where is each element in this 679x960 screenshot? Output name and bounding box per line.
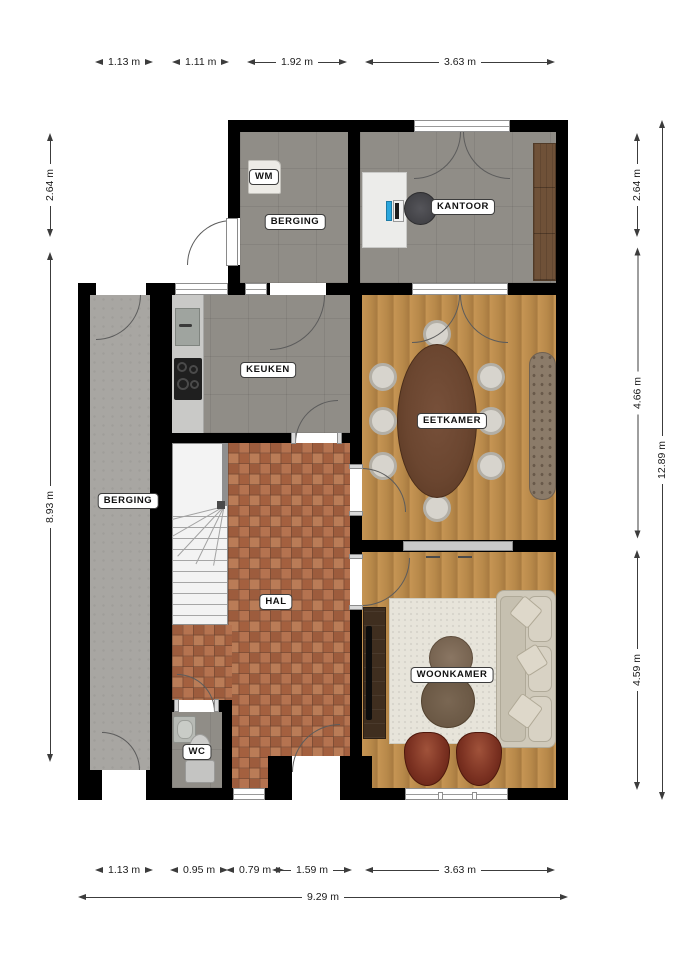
floor-plan: WM BERGING KANTOOR KEUKEN BERGING HAL EE…: [0, 0, 679, 960]
room-label-hal: HAL: [259, 594, 292, 610]
wc-sink-basin: [177, 720, 193, 739]
wall: [340, 756, 372, 800]
dimension-left-1: 2.64 m: [42, 133, 58, 237]
door-jamb: [349, 554, 363, 559]
monitor-screen: [395, 203, 399, 219]
dimension-bottom-5: 3.63 m: [365, 862, 555, 878]
door-opening-berging-garden: [102, 770, 146, 800]
wall: [268, 756, 292, 800]
door-opening-eetkamer-top: [412, 283, 508, 295]
dimension-bottom-total: 9.29 m: [78, 889, 568, 905]
porch: [292, 772, 340, 800]
kitchen-sink: [175, 308, 200, 346]
window-mullion: [438, 792, 443, 800]
burner: [189, 365, 198, 374]
dimension-top-3: 1.92 m: [247, 54, 347, 70]
stairs-stringer: [222, 444, 227, 506]
dimension-bottom-4: 1.59 m: [272, 862, 352, 878]
dimension-label: 12.89 m: [654, 436, 670, 484]
dimension-label: 1.13 m: [103, 54, 145, 70]
wall: [228, 120, 240, 295]
dining-chair: [477, 363, 505, 391]
floor-berging-top: [240, 132, 348, 283]
runner-rug: [529, 352, 556, 500]
room-label-berging-left: BERGING: [98, 493, 159, 509]
wall: [150, 283, 172, 770]
sliding-door-handle: [458, 556, 472, 558]
sliding-door-handle: [426, 556, 440, 558]
dimension-label: 0.95 m: [178, 862, 220, 878]
faucet: [179, 324, 192, 327]
dining-chair: [369, 363, 397, 391]
dimension-label: 1.59 m: [291, 862, 333, 878]
window-keuken: [245, 283, 267, 295]
dimension-right-2: 4.66 m: [630, 248, 646, 539]
room-label-berging-top: BERGING: [265, 214, 326, 230]
dimension-right-1: 2.64 m: [629, 133, 645, 237]
dimension-label: 2.64 m: [629, 164, 645, 206]
dimension-label: 3.63 m: [439, 54, 481, 70]
room-label-woonkamer: WOONKAMER: [411, 667, 494, 683]
wall: [78, 283, 90, 800]
staircase: [172, 443, 228, 625]
window-mullion: [472, 792, 477, 800]
door-opening-woonkamer-side: [350, 558, 362, 606]
laptop: [386, 201, 392, 221]
wall: [228, 120, 568, 132]
burner: [177, 362, 187, 372]
window-kantoor-top: [414, 120, 510, 132]
door-jamb: [337, 432, 342, 444]
room-label-eetkamer: EETKAMER: [417, 413, 487, 429]
dimension-right-total: 12.89 m: [654, 120, 670, 800]
dimension-right-3: 4.59 m: [629, 550, 645, 790]
dimension-label: 8.93 m: [42, 486, 58, 528]
dimension-left-2: 8.93 m: [42, 252, 58, 762]
door-opening-berging-left: [96, 283, 146, 295]
dining-chair: [369, 407, 397, 435]
window-woonkamer: [405, 788, 508, 800]
door-jamb: [349, 464, 363, 469]
door-jamb: [291, 432, 296, 444]
room-label-kantoor: KANTOOR: [431, 199, 495, 215]
stairs-newel-post: [217, 501, 225, 509]
door-jamb: [349, 605, 363, 610]
dining-chair: [423, 494, 451, 522]
burner: [177, 378, 189, 390]
dimension-bottom-1: 1.13 m: [95, 862, 153, 878]
dimension-label: 4.66 m: [630, 372, 646, 414]
dimension-label: 1.92 m: [276, 54, 318, 70]
door-leaf: [226, 218, 238, 266]
dimension-top-4: 3.63 m: [365, 54, 555, 70]
sliding-door: [403, 541, 513, 551]
door-opening-eetkamer-side: [350, 468, 362, 512]
door-opening-keuken-berging: [270, 283, 326, 295]
door-jamb: [174, 699, 179, 712]
dimension-bottom-3: 0.79 m: [226, 862, 268, 878]
dimension-label: 2.64 m: [42, 164, 58, 206]
dimension-top-2: 1.11 m: [172, 54, 228, 70]
wall: [556, 120, 568, 800]
burner: [190, 380, 199, 389]
tv: [366, 626, 372, 720]
dining-chair: [477, 452, 505, 480]
door-jamb: [214, 699, 219, 712]
dimension-label: 0.79 m: [234, 862, 276, 878]
dimension-label: 4.59 m: [629, 649, 645, 691]
dimension-top-1: 1.13 m: [95, 54, 153, 70]
wall: [348, 120, 360, 295]
floor-berging-left: [90, 295, 150, 770]
room-label-keuken: KEUKEN: [240, 362, 296, 378]
dimension-label: 1.13 m: [103, 862, 145, 878]
toilet-tank: [185, 760, 215, 783]
door-jamb: [349, 511, 363, 516]
closet: [533, 143, 556, 281]
window-stairs: [175, 283, 228, 295]
room-label-wm: WM: [249, 169, 279, 185]
dimension-bottom-2: 0.95 m: [170, 862, 222, 878]
dimension-label: 9.29 m: [302, 889, 344, 905]
stairs-straight-treads: [173, 506, 227, 626]
dimension-label: 3.63 m: [439, 862, 481, 878]
dimension-label: 1.11 m: [180, 54, 221, 70]
window-hal-bottom: [233, 788, 265, 800]
room-label-wc: WC: [182, 744, 211, 760]
wall: [222, 700, 232, 800]
